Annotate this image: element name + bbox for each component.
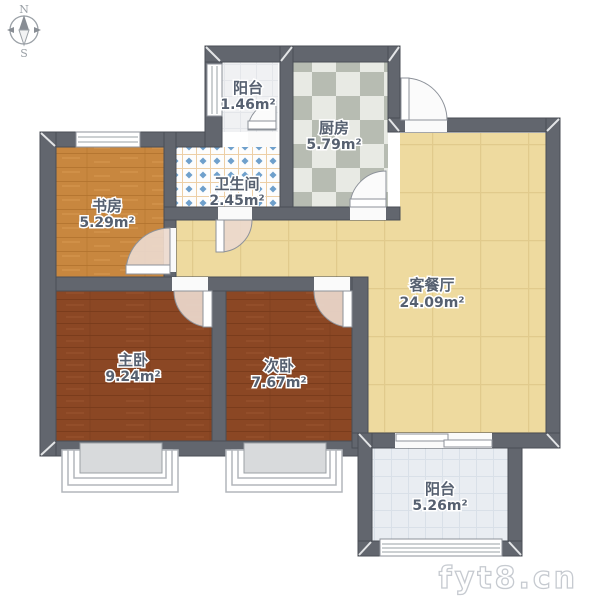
watermark-text: fyt8.cn (439, 561, 578, 596)
compass-north-label: N (19, 3, 29, 16)
bathroom-area: 2.45m² (209, 193, 264, 209)
living-dining-area: 24.09m² (399, 295, 464, 311)
second-bedroom-area: 7.67m² (251, 375, 306, 391)
balcony-north-area: 1.46m² (220, 97, 275, 113)
compass-south-label: S (20, 47, 28, 60)
floor-plan: 阳台 1.46m² 厨房 5.79m² 卫生间 2.45m² 书房 5.29m²… (0, 0, 600, 600)
balcony-south-name: 阳台 (425, 480, 455, 498)
balcony-south-window (380, 539, 502, 556)
balcony-north-name: 阳台 (233, 79, 263, 97)
master-bedroom-area: 9.24m² (105, 369, 160, 385)
kitchen-name: 厨房 (319, 119, 349, 137)
study-name: 书房 (92, 197, 122, 215)
study-area: 5.29m² (79, 215, 134, 231)
master-bedroom-name: 主卧 (118, 351, 148, 369)
second-bedroom-bay-window (226, 443, 342, 492)
second-bedroom-name: 次卧 (264, 357, 294, 375)
kitchen-area: 5.79m² (306, 137, 361, 153)
bathroom-name: 卫生间 (214, 175, 259, 193)
study-window (76, 132, 140, 147)
master-bedroom-bay-window (62, 443, 178, 492)
living-dining-name: 客餐厅 (408, 276, 454, 294)
balcony-south-area: 5.26m² (412, 498, 467, 514)
